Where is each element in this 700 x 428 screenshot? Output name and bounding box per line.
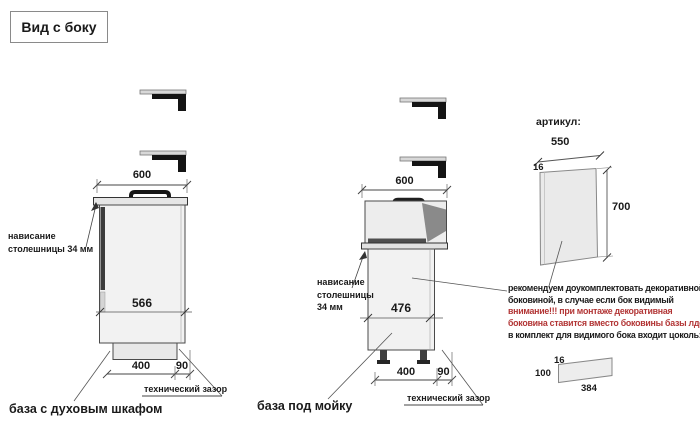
dim-384: 384 — [581, 384, 597, 394]
side-view-drawing-page: Вид с боку 600 566 400 90 технический за… — [0, 0, 700, 428]
note-line-3-warning: внимание!!! при монтаже декоративная — [508, 306, 700, 318]
leader-sink-label — [328, 333, 392, 399]
view-title: Вид с боку — [21, 19, 96, 35]
dim-400-mid: 400 — [375, 367, 437, 378]
dim-90-left: 90 — [167, 361, 197, 372]
articul-label: артикул: — [536, 117, 581, 128]
dimension-line-700 — [597, 166, 613, 262]
sink-cabinet-label: база под мойку — [257, 400, 352, 413]
overhang-label-left: нависание столешницы 34 мм — [8, 230, 93, 255]
dim-476: 476 — [368, 302, 434, 314]
dimension-line-550 — [534, 152, 604, 167]
dim-566: 566 — [97, 297, 187, 309]
dim-100: 100 — [535, 369, 551, 379]
dim-90-mid: 90 — [430, 367, 457, 378]
decorative-side-panel — [540, 169, 598, 266]
overhang-left-line1: нависание — [8, 230, 93, 243]
dim-16-panel: 16 — [533, 163, 544, 173]
tech-gap-label-mid: технический зазор — [407, 394, 490, 403]
tech-gap-label-left: технический зазор — [144, 385, 227, 394]
note-line-1: рекомендуем доукомплектовать декоративно… — [508, 283, 700, 295]
cabinet-leg-icon — [377, 350, 390, 364]
dim-700: 700 — [612, 202, 630, 213]
countertop-mid — [362, 243, 448, 249]
dim-400-left: 400 — [107, 361, 175, 372]
note-line-2: боковиной, в случае если бок видимый — [508, 295, 700, 307]
plinth-left — [113, 343, 177, 360]
drawing-svg — [0, 0, 700, 428]
oven-door-strip — [101, 207, 106, 290]
sink-bottom-strip — [368, 239, 426, 243]
view-title-box: Вид с боку — [10, 11, 108, 43]
dim-600-left: 600 — [97, 170, 187, 181]
overhang-mid-line3: 34 мм — [317, 301, 374, 314]
note-line-5: в комплект для видимого бока входит цоко… — [508, 330, 700, 342]
overhang-label-mid: нависание столешницы 34 мм — [317, 276, 374, 314]
countertop-left — [94, 198, 188, 206]
dim-550: 550 — [551, 137, 569, 148]
decorative-panel-drawing — [534, 152, 613, 383]
oven-cabinet-body — [100, 205, 186, 343]
plinth-part-shape — [559, 358, 613, 383]
dim-16-plinth: 16 — [554, 356, 565, 366]
oven-cabinet-label: база с духовым шкафом — [9, 403, 162, 416]
cabinet-leg-icon — [417, 350, 430, 364]
panel-note-text: рекомендуем доукомплектовать декоративно… — [508, 283, 700, 342]
mounting-bracket-icon — [400, 98, 446, 119]
sink-cabinet-body — [368, 249, 435, 350]
overhang-mid-line2: столешницы — [317, 289, 374, 302]
note-line-4-warning: боковина ставится вместо боковины базы л… — [508, 318, 700, 330]
mounting-bracket-icon — [140, 90, 186, 111]
overhang-mid-line1: нависание — [317, 276, 374, 289]
dim-600-mid: 600 — [362, 176, 447, 187]
overhang-left-line2: столешницы 34 мм — [8, 243, 93, 256]
